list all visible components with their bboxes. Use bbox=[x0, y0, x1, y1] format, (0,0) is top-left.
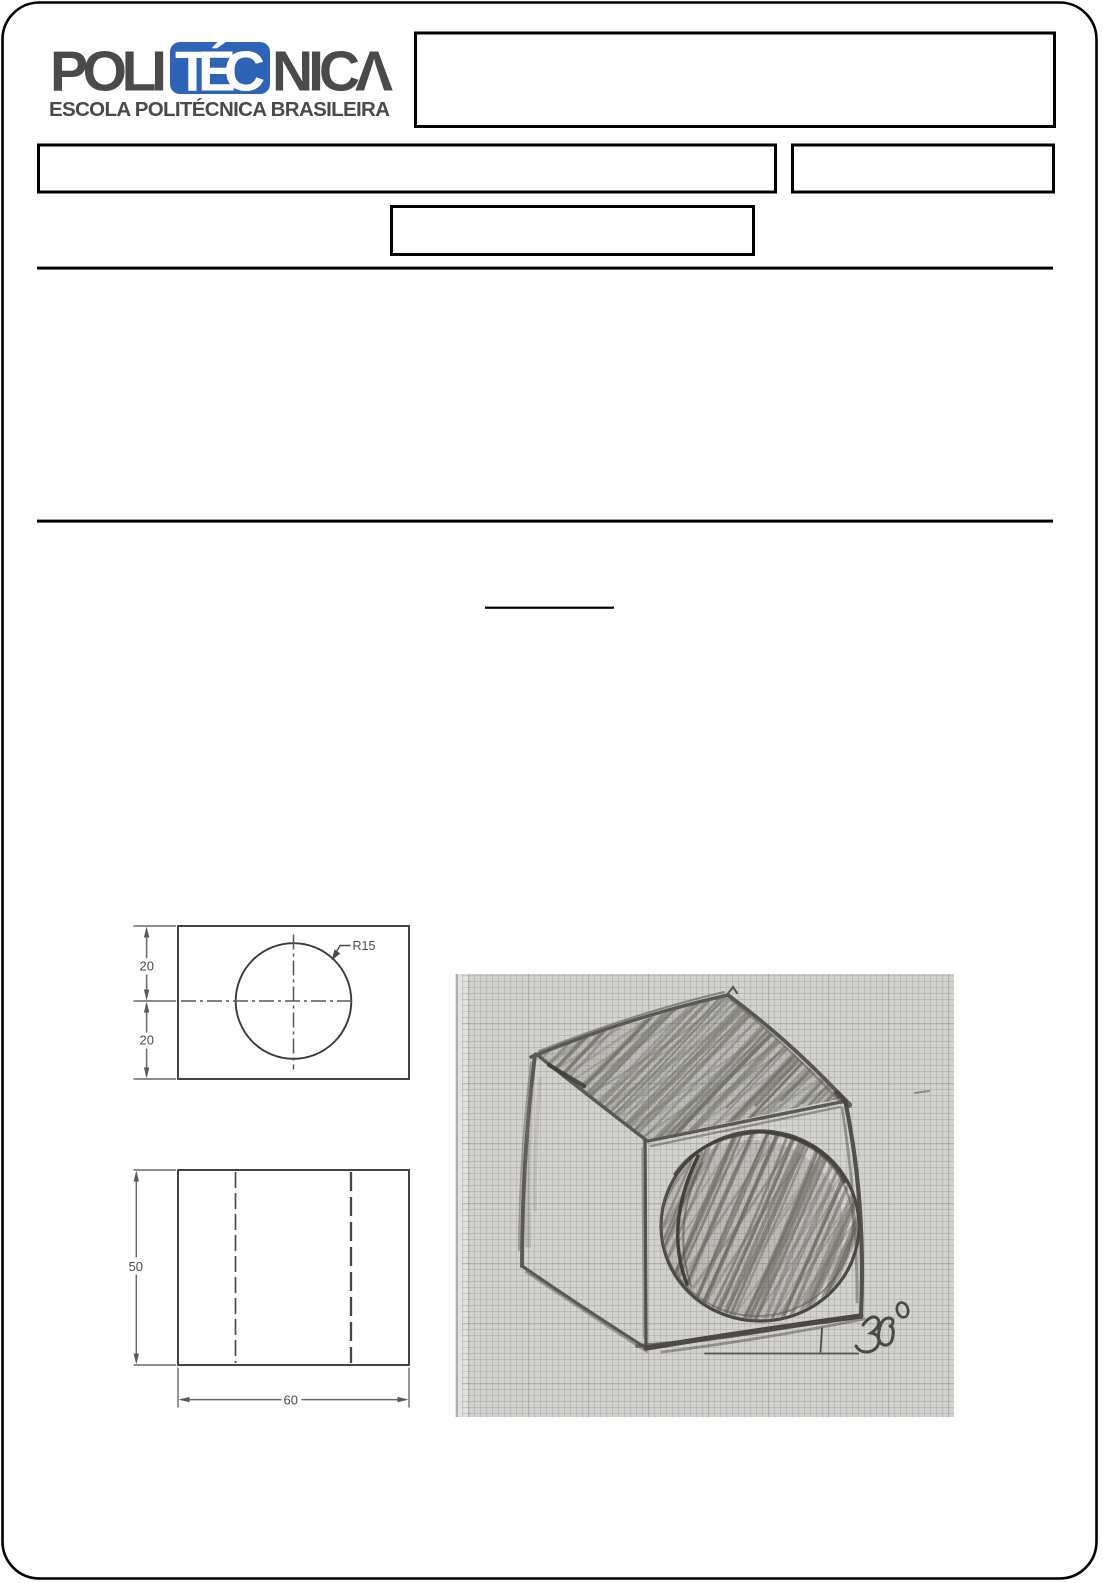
svg-text:20: 20 bbox=[140, 1033, 154, 1048]
svg-text:R15: R15 bbox=[353, 939, 376, 953]
svg-text:50: 50 bbox=[129, 1259, 143, 1274]
svg-text:NICΛ: NICΛ bbox=[272, 40, 393, 104]
svg-text:POLI: POLI bbox=[50, 40, 167, 104]
svg-text:ESCOLA POLITÉCNICA BRASILEIRA: ESCOLA POLITÉCNICA BRASILEIRA bbox=[49, 98, 390, 121]
svg-text:60: 60 bbox=[284, 1393, 298, 1408]
svg-text:TÉC: TÉC bbox=[175, 40, 265, 104]
svg-text:20: 20 bbox=[140, 959, 154, 974]
